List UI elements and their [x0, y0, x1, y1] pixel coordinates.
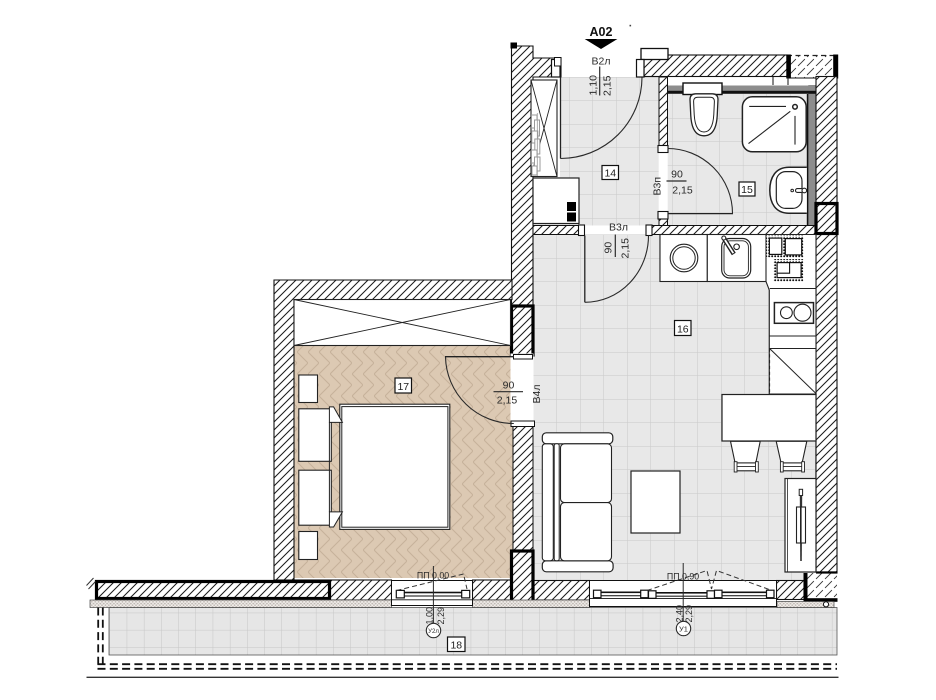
svg-text:17: 17 [397, 381, 409, 393]
svg-text:В4л: В4л [531, 385, 543, 404]
svg-text:90: 90 [603, 242, 615, 254]
svg-text:18: 18 [450, 640, 462, 652]
svg-text:2,15: 2,15 [620, 238, 632, 259]
svg-text:2,15: 2,15 [602, 75, 614, 96]
svg-text:У1: У1 [679, 625, 688, 634]
svg-text:1,10: 1,10 [588, 75, 600, 96]
svg-text:1,00: 1,00 [425, 607, 435, 625]
svg-text:2,29: 2,29 [436, 607, 446, 625]
svg-text:2,40: 2,40 [674, 605, 684, 623]
svg-text:2,29: 2,29 [684, 605, 694, 623]
svg-text:В3п: В3п [652, 177, 664, 196]
svg-text:2,15: 2,15 [497, 395, 518, 407]
svg-text:16: 16 [677, 324, 689, 336]
svg-text:90: 90 [671, 169, 683, 181]
svg-text:2,15: 2,15 [672, 185, 693, 197]
svg-text:В2л: В2л [592, 56, 611, 68]
svg-text:90: 90 [503, 380, 515, 392]
svg-text:В3л: В3л [609, 222, 628, 234]
svg-text:У2л: У2л [428, 629, 439, 635]
svg-text:15: 15 [741, 184, 753, 196]
svg-text:A02: A02 [590, 25, 613, 39]
svg-text:14: 14 [604, 168, 616, 180]
